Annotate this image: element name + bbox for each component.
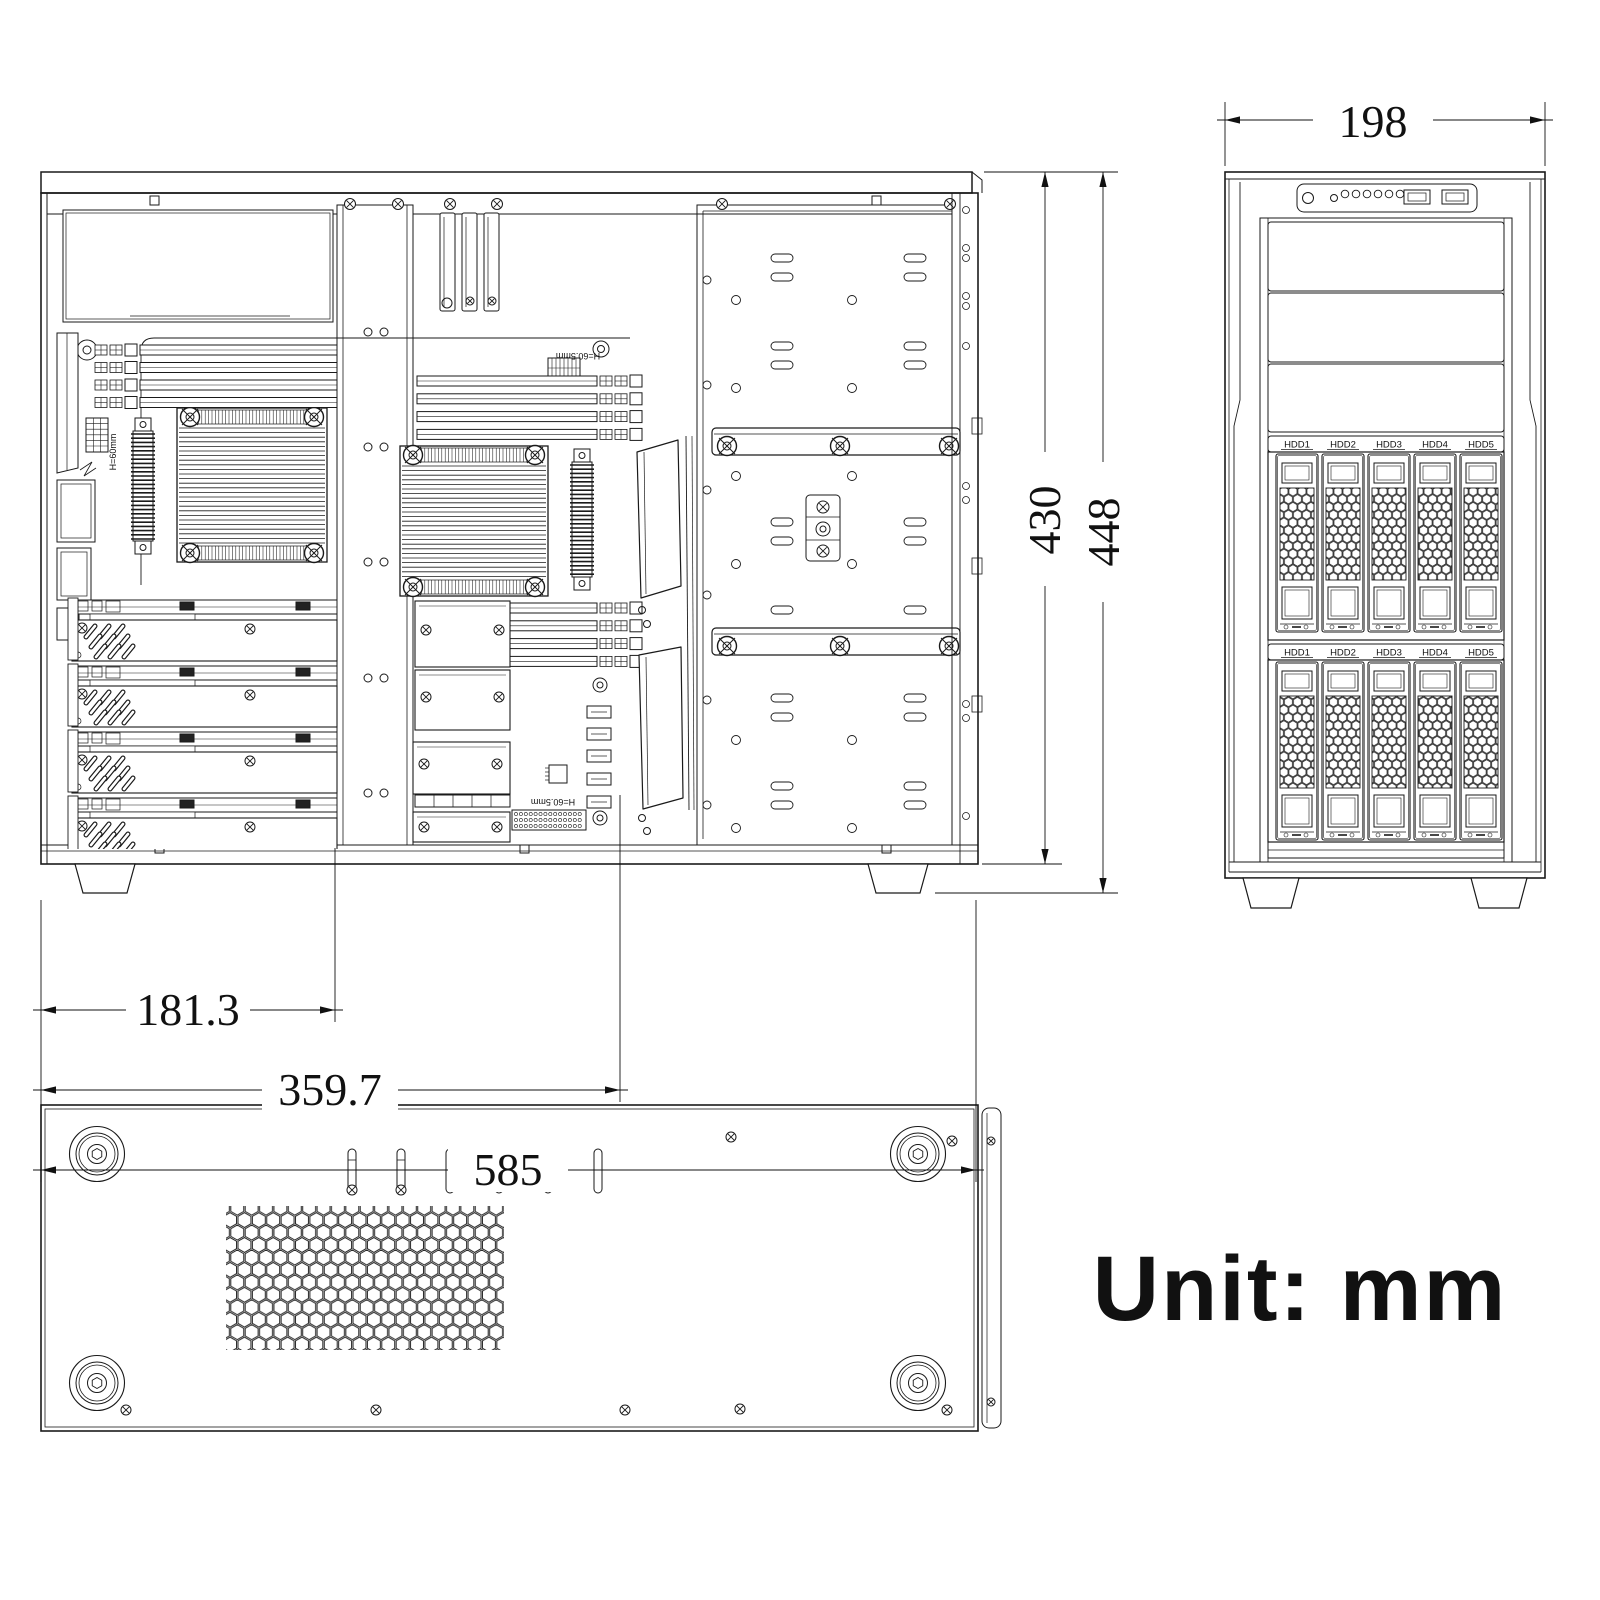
hdd-label: HDD2	[1330, 440, 1356, 451]
hdd-drive	[1368, 454, 1410, 632]
silkscreen-io-height: H=60.5mm	[556, 351, 600, 361]
hdd-label: HDD2	[1330, 648, 1356, 659]
chassis-foot	[891, 1127, 946, 1182]
hdd-label: HDD5	[1468, 648, 1494, 659]
silkscreen-header-height: H=60.5mm	[531, 797, 575, 807]
hdd-label: HDD4	[1422, 440, 1448, 451]
unit-note: Unit: mm	[1093, 1238, 1508, 1340]
chassis-foot	[70, 1356, 125, 1411]
dim-height-total: 448	[1078, 498, 1129, 567]
side-view: H=60mm H=60.5mm H=60.5mm	[41, 172, 982, 893]
chassis-dimensional-drawing: H=60mm H=60.5mm H=60.5mm HDD1HDD2HDD3HDD…	[0, 0, 1600, 1600]
expansion-cards	[68, 598, 337, 859]
hdd-drive	[1276, 662, 1318, 840]
chassis-foot	[70, 1127, 125, 1182]
hdd-label: HDD3	[1376, 648, 1402, 659]
dim-width-total: 585	[474, 1144, 543, 1195]
hdd-label: HDD5	[1468, 440, 1494, 451]
hdd-label: HDD3	[1376, 440, 1402, 451]
silkscreen-cooler-height: H=60mm	[108, 434, 118, 471]
hdd-drive	[1322, 662, 1364, 840]
hdd-drive	[1414, 454, 1456, 632]
front-view: HDD1HDD2HDD3HDD4HDD5HDD1HDD2HDD3HDD4HDD5	[1225, 172, 1545, 908]
hdd-drive	[1276, 454, 1318, 632]
hdd-drive	[1460, 662, 1502, 840]
dim-width-to-column: 181.3	[136, 984, 240, 1035]
dim-width-to-mobo: 359.7	[278, 1064, 382, 1115]
dim-height-inner: 430	[1019, 486, 1070, 555]
dim-front-width: 198	[1339, 96, 1408, 147]
hdd-label: HDD1	[1284, 648, 1310, 659]
hdd-label: HDD1	[1284, 440, 1310, 451]
hdd-drive	[1368, 662, 1410, 840]
hdd-drive	[1460, 454, 1502, 632]
chassis-foot	[891, 1356, 946, 1411]
hdd-drive	[1414, 662, 1456, 840]
hdd-drive	[1322, 454, 1364, 632]
hdd-label: HDD4	[1422, 648, 1448, 659]
